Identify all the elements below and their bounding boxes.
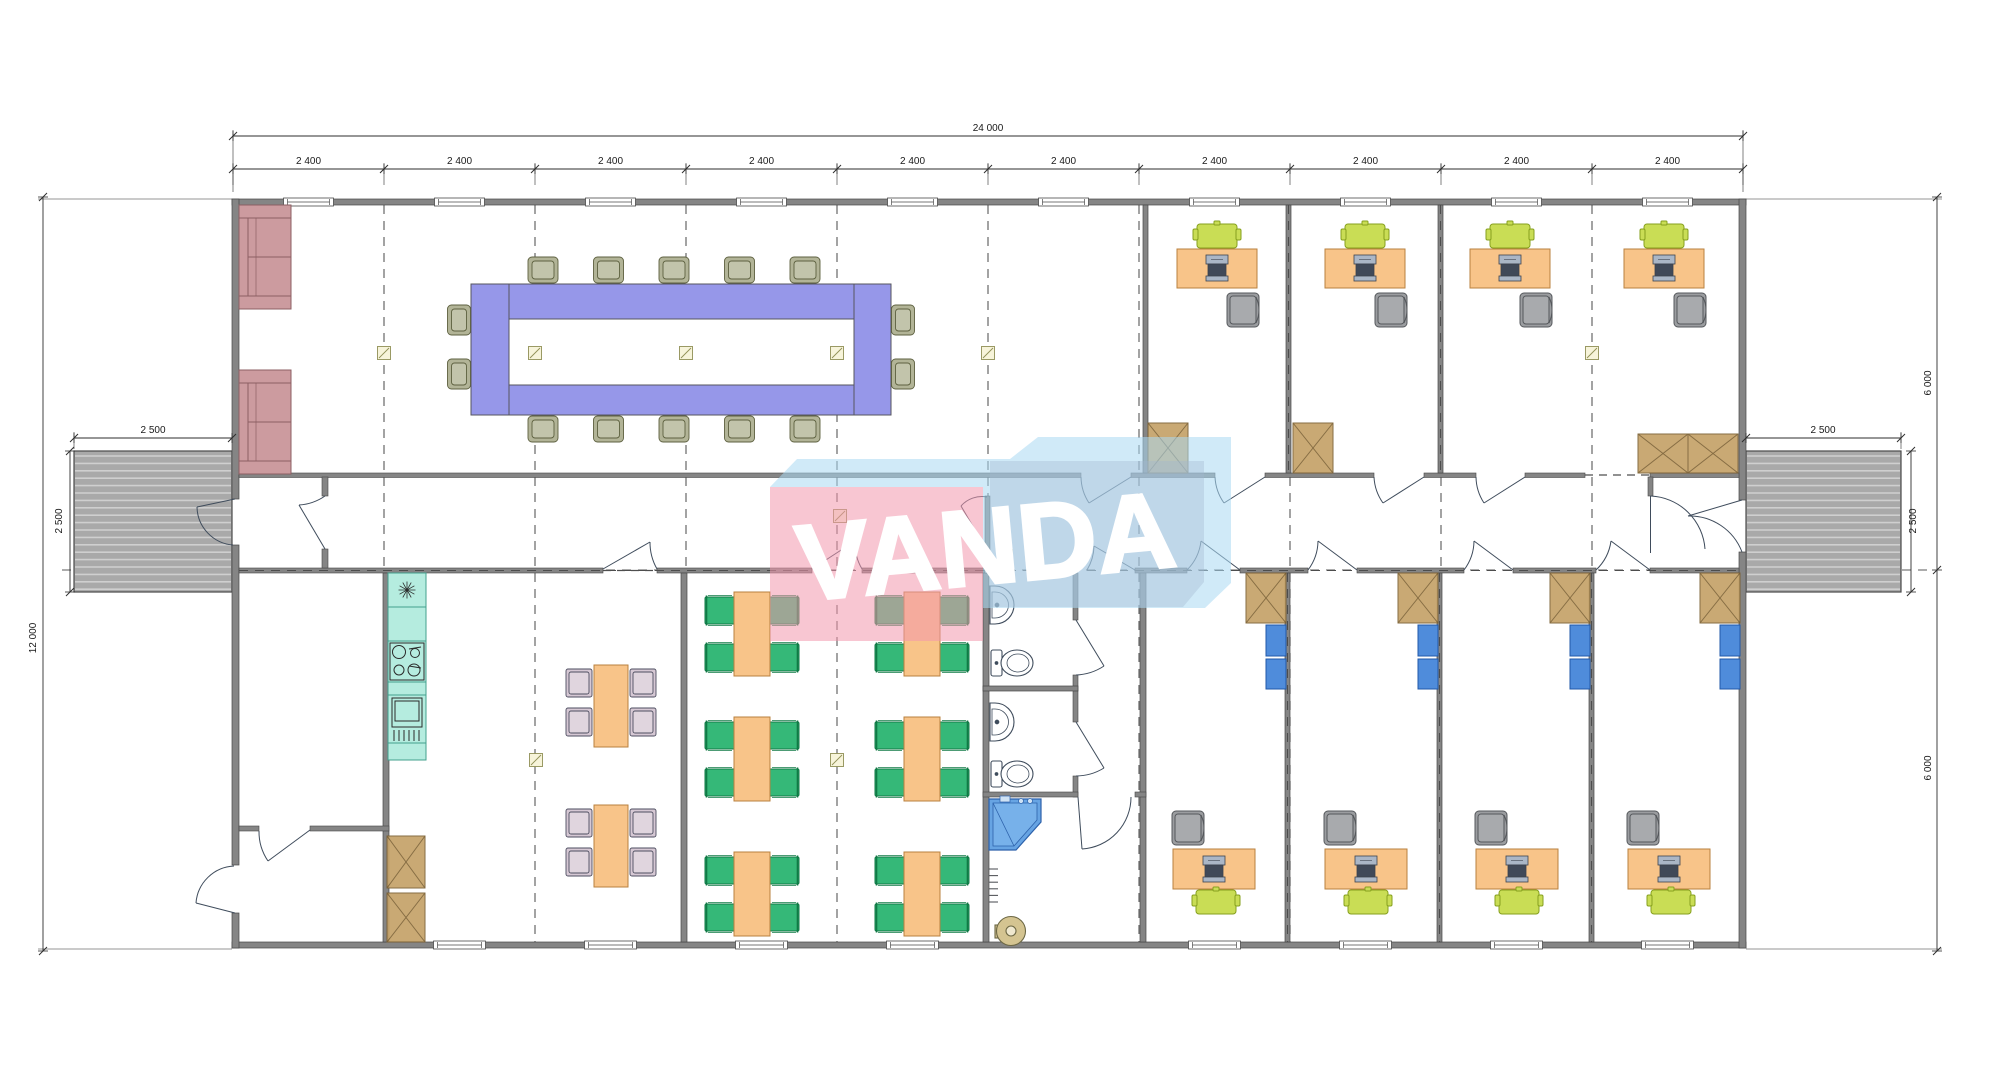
- svg-text:2 400: 2 400: [296, 156, 321, 167]
- svg-text:2 400: 2 400: [900, 156, 925, 167]
- svg-text:2 400: 2 400: [1051, 156, 1076, 167]
- svg-text:2 400: 2 400: [1202, 156, 1227, 167]
- svg-text:12 000: 12 000: [28, 622, 39, 653]
- svg-text:2 400: 2 400: [1655, 156, 1680, 167]
- svg-text:6 000: 6 000: [1923, 370, 1934, 395]
- svg-text:2 500: 2 500: [1810, 425, 1835, 436]
- svg-text:6 000: 6 000: [1923, 755, 1934, 780]
- svg-text:2 400: 2 400: [749, 156, 774, 167]
- svg-text:2 400: 2 400: [447, 156, 472, 167]
- svg-text:2 400: 2 400: [1353, 156, 1378, 167]
- svg-text:2 500: 2 500: [54, 508, 65, 533]
- svg-text:24 000: 24 000: [973, 123, 1004, 134]
- svg-text:2 400: 2 400: [1504, 156, 1529, 167]
- svg-text:2 400: 2 400: [598, 156, 623, 167]
- svg-text:2 500: 2 500: [140, 425, 165, 436]
- svg-text:2 500: 2 500: [1908, 508, 1919, 533]
